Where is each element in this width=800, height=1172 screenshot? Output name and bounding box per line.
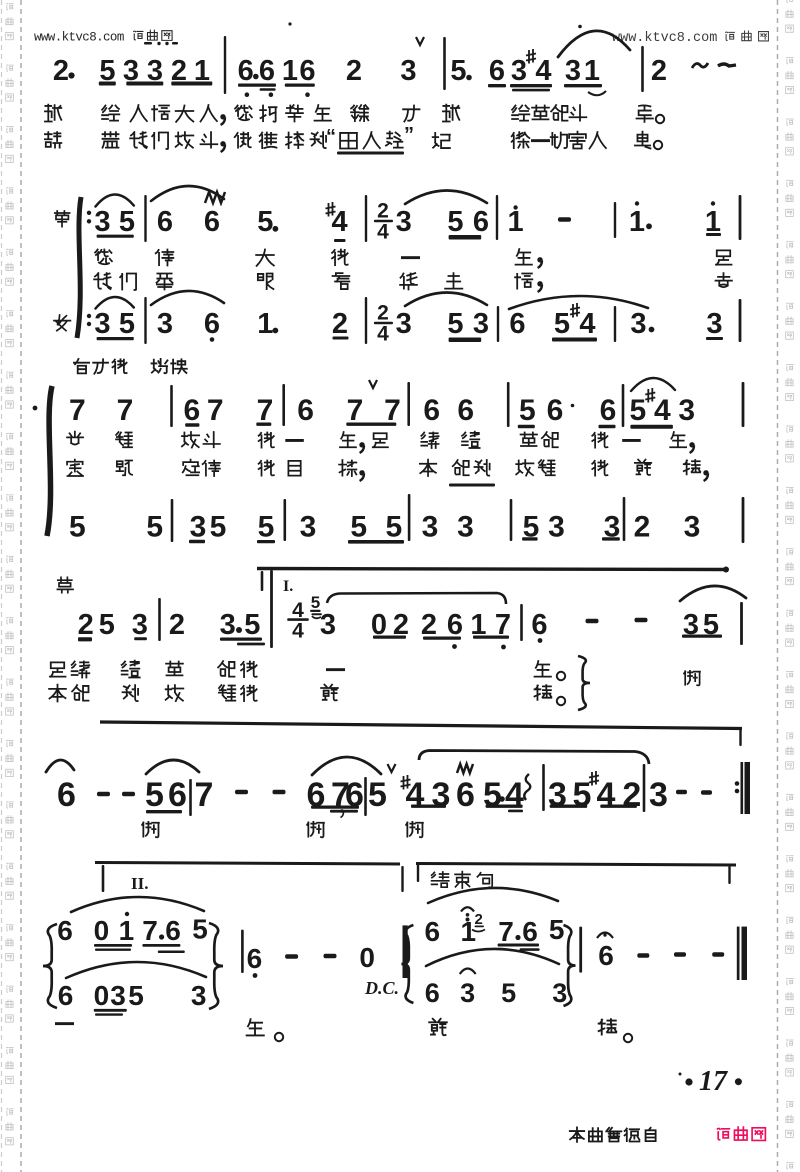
svg-text:4: 4 bbox=[406, 776, 425, 814]
svg-text:7: 7 bbox=[117, 394, 134, 427]
svg-text:2: 2 bbox=[377, 200, 389, 223]
svg-text:7: 7 bbox=[384, 394, 401, 427]
svg-text:3: 3 bbox=[396, 308, 412, 340]
svg-text:3: 3 bbox=[649, 776, 668, 814]
svg-text:0: 0 bbox=[94, 980, 110, 1011]
svg-text:3: 3 bbox=[548, 511, 565, 544]
svg-text:”: ” bbox=[404, 124, 414, 146]
svg-text:I.: I. bbox=[283, 578, 293, 595]
svg-text:5: 5 bbox=[549, 914, 565, 945]
svg-text:5: 5 bbox=[128, 980, 144, 1011]
svg-text:2: 2 bbox=[169, 609, 185, 641]
svg-text:3: 3 bbox=[630, 308, 646, 340]
svg-text:3: 3 bbox=[460, 978, 475, 1008]
svg-text:3: 3 bbox=[684, 511, 701, 544]
svg-text:3: 3 bbox=[132, 609, 148, 641]
svg-text:2: 2 bbox=[634, 511, 651, 544]
svg-text:3: 3 bbox=[396, 206, 412, 238]
svg-text:6: 6 bbox=[473, 206, 489, 238]
svg-text:6: 6 bbox=[299, 55, 315, 87]
svg-text:5: 5 bbox=[119, 206, 135, 238]
svg-text:6: 6 bbox=[423, 394, 440, 427]
svg-text:4: 4 bbox=[579, 308, 595, 340]
svg-text:1: 1 bbox=[629, 206, 645, 238]
svg-text:6: 6 bbox=[457, 394, 474, 427]
svg-text:II.: II. bbox=[131, 874, 148, 893]
svg-text:3: 3 bbox=[511, 55, 527, 87]
svg-text:6: 6 bbox=[509, 308, 525, 340]
svg-text:2: 2 bbox=[332, 308, 348, 340]
svg-text:4: 4 bbox=[377, 221, 389, 244]
svg-text:1: 1 bbox=[282, 55, 298, 87]
svg-text:5: 5 bbox=[519, 394, 536, 427]
svg-text:6: 6 bbox=[57, 915, 73, 946]
svg-text:1: 1 bbox=[119, 915, 135, 946]
svg-text:www.ktvc8.com: www.ktvc8.com bbox=[612, 31, 717, 46]
svg-text:1: 1 bbox=[584, 55, 600, 87]
svg-text:5: 5 bbox=[368, 776, 387, 814]
svg-text:5: 5 bbox=[119, 308, 135, 340]
svg-text:3: 3 bbox=[678, 394, 695, 427]
svg-text:3: 3 bbox=[220, 609, 236, 641]
svg-text:5: 5 bbox=[483, 776, 502, 814]
svg-text:4: 4 bbox=[597, 776, 616, 814]
svg-text:“: “ bbox=[326, 126, 336, 148]
svg-text:3: 3 bbox=[191, 980, 207, 1011]
svg-text:3: 3 bbox=[706, 308, 722, 340]
svg-text:0: 0 bbox=[94, 915, 110, 946]
svg-text:5: 5 bbox=[69, 511, 86, 544]
svg-text:1: 1 bbox=[508, 206, 524, 238]
svg-text:3: 3 bbox=[552, 978, 567, 1008]
svg-text:7: 7 bbox=[142, 915, 158, 946]
svg-text:7: 7 bbox=[195, 776, 214, 814]
svg-text:2: 2 bbox=[651, 55, 667, 87]
svg-text:6: 6 bbox=[489, 55, 505, 87]
svg-text:5: 5 bbox=[99, 609, 115, 641]
svg-text:2: 2 bbox=[421, 609, 437, 641]
svg-text:6: 6 bbox=[204, 308, 220, 340]
svg-text:6: 6 bbox=[522, 916, 538, 947]
svg-text:3: 3 bbox=[565, 55, 581, 87]
svg-text:3: 3 bbox=[422, 511, 439, 544]
svg-text:6: 6 bbox=[297, 394, 314, 427]
svg-text:3: 3 bbox=[400, 55, 416, 87]
svg-text:2: 2 bbox=[622, 776, 641, 814]
svg-text:4: 4 bbox=[377, 323, 389, 346]
svg-text:6: 6 bbox=[168, 776, 187, 814]
svg-text:5: 5 bbox=[573, 776, 592, 814]
svg-text:5: 5 bbox=[554, 308, 570, 340]
svg-text:6: 6 bbox=[157, 206, 173, 238]
svg-text:6: 6 bbox=[547, 394, 564, 427]
svg-text:6: 6 bbox=[456, 776, 475, 814]
svg-text:3: 3 bbox=[432, 776, 451, 814]
svg-text:5: 5 bbox=[350, 511, 367, 544]
svg-text:1: 1 bbox=[257, 308, 273, 340]
svg-text:4: 4 bbox=[505, 776, 524, 814]
svg-text:3: 3 bbox=[473, 308, 489, 340]
svg-text:7: 7 bbox=[69, 394, 86, 427]
svg-text:3: 3 bbox=[300, 511, 317, 544]
svg-text:3: 3 bbox=[94, 308, 110, 340]
svg-text:3: 3 bbox=[190, 511, 207, 544]
svg-text:6: 6 bbox=[259, 55, 275, 87]
svg-text:2: 2 bbox=[53, 55, 69, 87]
svg-text:6: 6 bbox=[165, 915, 181, 946]
svg-text:7: 7 bbox=[347, 394, 364, 427]
svg-text:5: 5 bbox=[145, 776, 164, 814]
svg-text:7: 7 bbox=[257, 394, 274, 427]
svg-text:0: 0 bbox=[359, 942, 375, 973]
svg-text:4: 4 bbox=[292, 619, 304, 642]
svg-text:5: 5 bbox=[258, 511, 275, 544]
svg-text:3: 3 bbox=[94, 206, 110, 238]
svg-text:5: 5 bbox=[257, 206, 273, 238]
svg-text:7: 7 bbox=[498, 916, 514, 947]
svg-text:5: 5 bbox=[311, 593, 320, 612]
svg-text:3: 3 bbox=[457, 511, 474, 544]
svg-text:3: 3 bbox=[548, 776, 567, 814]
svg-text:2: 2 bbox=[78, 609, 94, 641]
svg-text:6: 6 bbox=[247, 943, 263, 974]
svg-text:6: 6 bbox=[425, 916, 441, 947]
svg-text:5: 5 bbox=[210, 511, 227, 544]
svg-text:4: 4 bbox=[654, 394, 671, 427]
svg-text:2: 2 bbox=[377, 302, 389, 325]
svg-text:6: 6 bbox=[425, 978, 440, 1008]
svg-text:6: 6 bbox=[58, 980, 74, 1011]
svg-text:6: 6 bbox=[238, 55, 254, 87]
svg-text:3: 3 bbox=[320, 609, 336, 641]
svg-text:17: 17 bbox=[699, 1066, 728, 1097]
svg-text:3: 3 bbox=[157, 308, 173, 340]
svg-text:5: 5 bbox=[450, 55, 466, 87]
svg-text:6: 6 bbox=[57, 776, 76, 814]
svg-text:5: 5 bbox=[501, 978, 516, 1008]
svg-text:7: 7 bbox=[207, 394, 224, 427]
svg-text:5: 5 bbox=[629, 394, 646, 427]
svg-text:3: 3 bbox=[110, 980, 126, 1011]
svg-text:6: 6 bbox=[447, 609, 463, 641]
svg-text:4: 4 bbox=[535, 55, 551, 87]
svg-text:6: 6 bbox=[598, 940, 614, 971]
svg-text:5: 5 bbox=[146, 511, 163, 544]
svg-text:2: 2 bbox=[346, 55, 362, 87]
svg-text:5: 5 bbox=[244, 609, 260, 641]
svg-text:5: 5 bbox=[192, 914, 208, 945]
svg-text:6: 6 bbox=[204, 206, 220, 238]
svg-text:5: 5 bbox=[447, 308, 463, 340]
svg-text:6: 6 bbox=[531, 609, 547, 641]
svg-text:5: 5 bbox=[385, 511, 402, 544]
svg-text:6: 6 bbox=[600, 394, 617, 427]
svg-text:4: 4 bbox=[332, 206, 348, 238]
svg-text:6: 6 bbox=[183, 394, 200, 427]
svg-text:2: 2 bbox=[475, 911, 483, 928]
svg-text:5: 5 bbox=[447, 206, 463, 238]
svg-text:www.ktvc8.com: www.ktvc8.com bbox=[34, 31, 124, 45]
svg-text:D.C.: D.C. bbox=[364, 978, 399, 998]
